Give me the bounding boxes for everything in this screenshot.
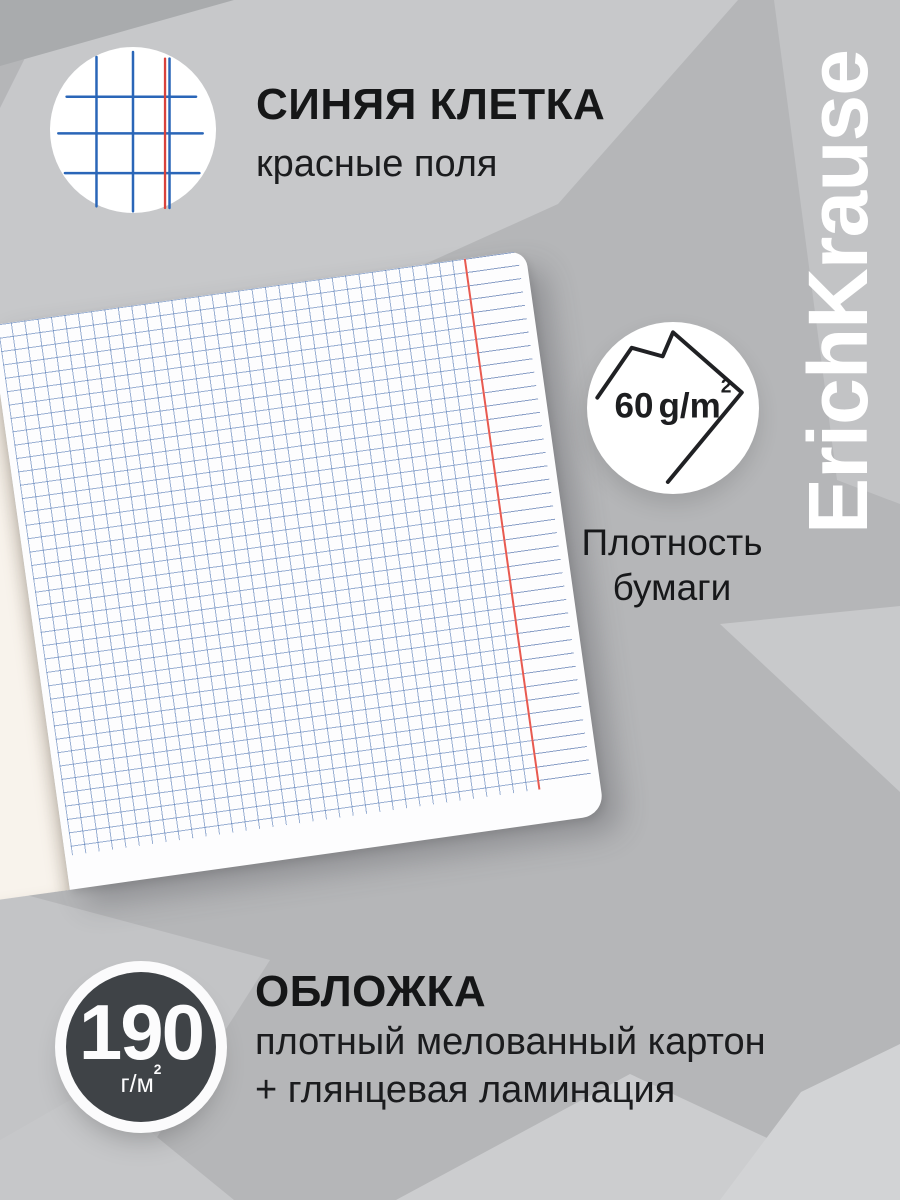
cover-unit-sup: 2: [154, 1062, 162, 1077]
cover-caption: ОБЛОЖКА плотный мелованный картон + глян…: [255, 966, 766, 1114]
grid-feature-caption: СИНЯЯ КЛЕТКА красные поля: [256, 80, 605, 186]
cover-weight-unit: г/м2: [121, 1070, 162, 1099]
density-unit: g/m: [658, 386, 720, 425]
density-caption-line2: бумаги: [502, 565, 842, 610]
cover-unit-main: г/м: [121, 1070, 154, 1098]
cover-desc-line2: + глянцевая ламинация: [255, 1066, 766, 1114]
cover-title: ОБЛОЖКА: [255, 966, 766, 1018]
product-infographic: СИНЯЯ КЛЕТКА красные поля ErichKrause 60…: [0, 0, 900, 1200]
feature-subtitle: красные поля: [256, 142, 605, 186]
feature-title: СИНЯЯ КЛЕТКА: [256, 80, 605, 130]
density-unit-sup: 2: [721, 377, 732, 398]
density-value: 60g/m2: [587, 386, 759, 426]
brand-logo: ErichKrause: [788, 12, 888, 572]
blue-grid: [0, 259, 538, 855]
grid-swatch-badge: [50, 47, 216, 213]
squared-grid-icon: [50, 47, 216, 213]
density-caption-line1: Плотность: [502, 520, 842, 565]
cover-weight-badge: 190 г/м2: [66, 972, 216, 1122]
density-number: 60: [615, 386, 654, 425]
paper-density-badge: 60g/m2: [587, 322, 759, 494]
cover-weight-number: 190: [79, 995, 203, 1069]
cover-desc-line1: плотный мелованный картон: [255, 1018, 766, 1066]
density-caption: Плотность бумаги: [502, 520, 842, 610]
